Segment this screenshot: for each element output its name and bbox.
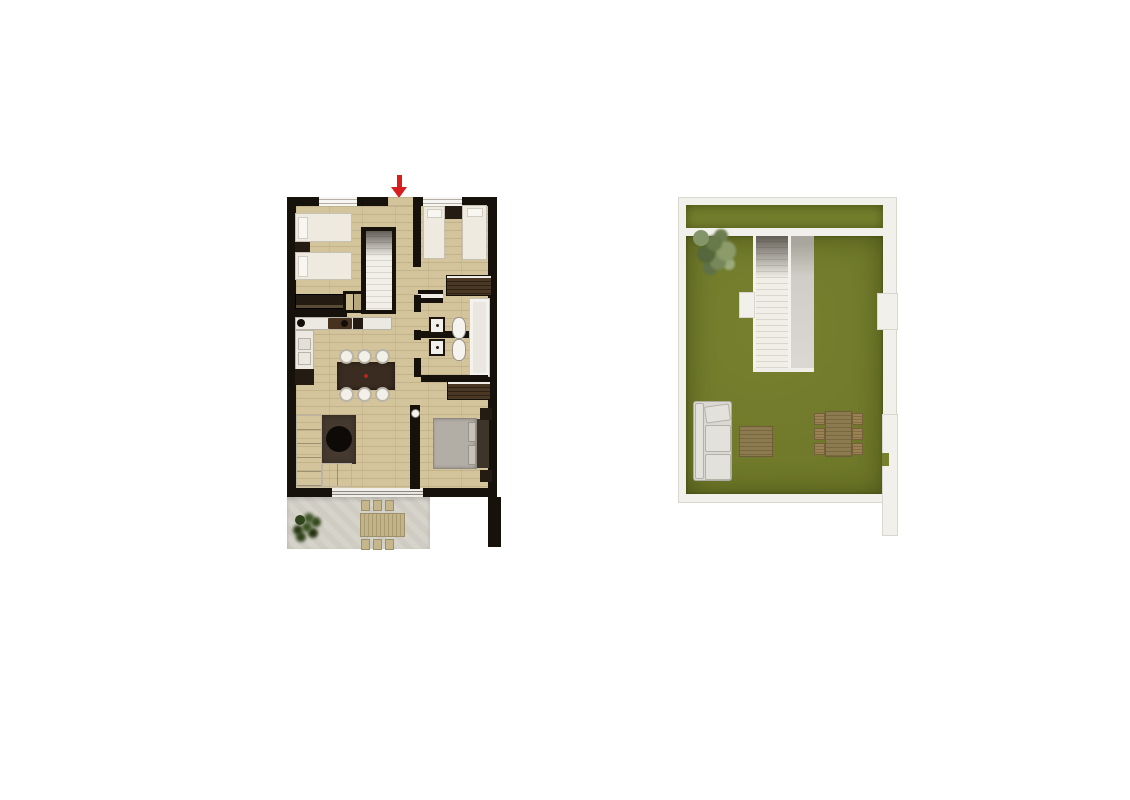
sofa-backrest bbox=[695, 403, 704, 479]
plant-icon bbox=[295, 515, 305, 525]
terrace-sliding-door bbox=[332, 488, 423, 497]
chair bbox=[357, 349, 372, 364]
outdoor-chair bbox=[852, 428, 863, 440]
side-wall-strip bbox=[882, 414, 898, 536]
wall-bath bbox=[414, 295, 421, 312]
stair-walkway bbox=[791, 236, 814, 372]
apartment-plan bbox=[287, 197, 497, 497]
chair bbox=[375, 349, 390, 364]
window-icon bbox=[319, 197, 357, 206]
floor-plan-image bbox=[0, 0, 1130, 800]
tree-icon bbox=[693, 230, 709, 246]
coffee-table bbox=[739, 426, 773, 457]
pillow bbox=[298, 217, 308, 239]
pillow bbox=[427, 209, 442, 218]
chair bbox=[375, 387, 390, 402]
sofa-cushion bbox=[705, 454, 731, 480]
bed bbox=[295, 213, 352, 242]
outdoor-chair bbox=[361, 500, 370, 511]
wall-bedroom2 bbox=[413, 197, 421, 267]
wardrobe bbox=[448, 382, 490, 399]
nightstand bbox=[445, 206, 462, 219]
shower bbox=[469, 298, 490, 377]
sofa-chaise bbox=[322, 463, 352, 487]
nightstand bbox=[480, 470, 492, 482]
kitchen-sink bbox=[328, 318, 352, 329]
kitchen-cabinet bbox=[295, 369, 314, 385]
planter-left bbox=[739, 292, 755, 318]
faucet-dot bbox=[436, 324, 439, 327]
bed bbox=[423, 206, 445, 259]
sink-icon bbox=[429, 317, 445, 334]
outdoor-sofa bbox=[693, 401, 732, 481]
outdoor-chair bbox=[814, 413, 825, 425]
outdoor-chair bbox=[373, 500, 382, 511]
lamp-icon bbox=[411, 409, 420, 418]
upper-lawn-strip bbox=[686, 205, 883, 228]
staircase-shadow bbox=[366, 231, 392, 257]
lawn-notch bbox=[882, 453, 889, 466]
double-bed bbox=[433, 418, 477, 469]
wall-bath bbox=[414, 358, 421, 377]
appliance bbox=[353, 318, 363, 329]
chair bbox=[339, 349, 354, 364]
wardrobe bbox=[447, 276, 491, 295]
staircase-shadow bbox=[756, 236, 788, 278]
nightstand bbox=[480, 408, 492, 420]
toilet-icon bbox=[452, 317, 466, 339]
entrance-door-opening bbox=[388, 197, 414, 206]
outdoor-chair bbox=[814, 428, 825, 440]
outdoor-chair bbox=[385, 539, 394, 550]
window-icon bbox=[423, 197, 462, 206]
dining-table bbox=[337, 362, 395, 390]
faucet-dot bbox=[436, 346, 439, 349]
toilet-icon bbox=[452, 339, 466, 361]
oven bbox=[298, 352, 311, 365]
outdoor-chair bbox=[852, 443, 863, 455]
wall-bath bbox=[414, 330, 421, 340]
nightstand bbox=[295, 242, 310, 252]
kettle-icon bbox=[297, 319, 305, 327]
stove-icon bbox=[341, 320, 348, 327]
outdoor-chair bbox=[373, 539, 382, 550]
outdoor-chair bbox=[385, 500, 394, 511]
terrace bbox=[287, 497, 430, 549]
sofa bbox=[296, 415, 322, 487]
wall-master bbox=[421, 375, 488, 382]
chair bbox=[339, 387, 354, 402]
coffee-table bbox=[326, 426, 352, 452]
closet-doors bbox=[346, 294, 361, 310]
bed bbox=[462, 205, 487, 260]
sink-icon bbox=[429, 339, 445, 356]
entrance-arrow-shaft bbox=[397, 175, 402, 187]
closet bbox=[343, 291, 364, 313]
planter-right bbox=[877, 293, 898, 330]
flower-decor bbox=[364, 374, 368, 378]
pillow bbox=[468, 422, 476, 442]
outdoor-table bbox=[360, 513, 405, 537]
dishwasher bbox=[298, 338, 311, 350]
outdoor-dining-table bbox=[825, 411, 852, 457]
wall-extension-strip bbox=[488, 497, 501, 547]
wardrobe bbox=[295, 294, 347, 309]
chair bbox=[357, 387, 372, 402]
hall-shelf bbox=[418, 290, 443, 303]
solarium-plan bbox=[678, 197, 897, 503]
stair-bottom-edge bbox=[753, 368, 814, 372]
pillow bbox=[467, 208, 483, 217]
pillow bbox=[468, 445, 476, 465]
sofa-cushion bbox=[705, 425, 731, 452]
bed bbox=[295, 252, 352, 280]
outdoor-chair bbox=[852, 413, 863, 425]
wall-kitchen bbox=[287, 309, 347, 317]
sofa-cushion bbox=[704, 403, 731, 423]
headboard bbox=[477, 419, 489, 468]
outdoor-chair bbox=[814, 443, 825, 455]
outdoor-chair bbox=[361, 539, 370, 550]
pillow bbox=[298, 256, 308, 277]
